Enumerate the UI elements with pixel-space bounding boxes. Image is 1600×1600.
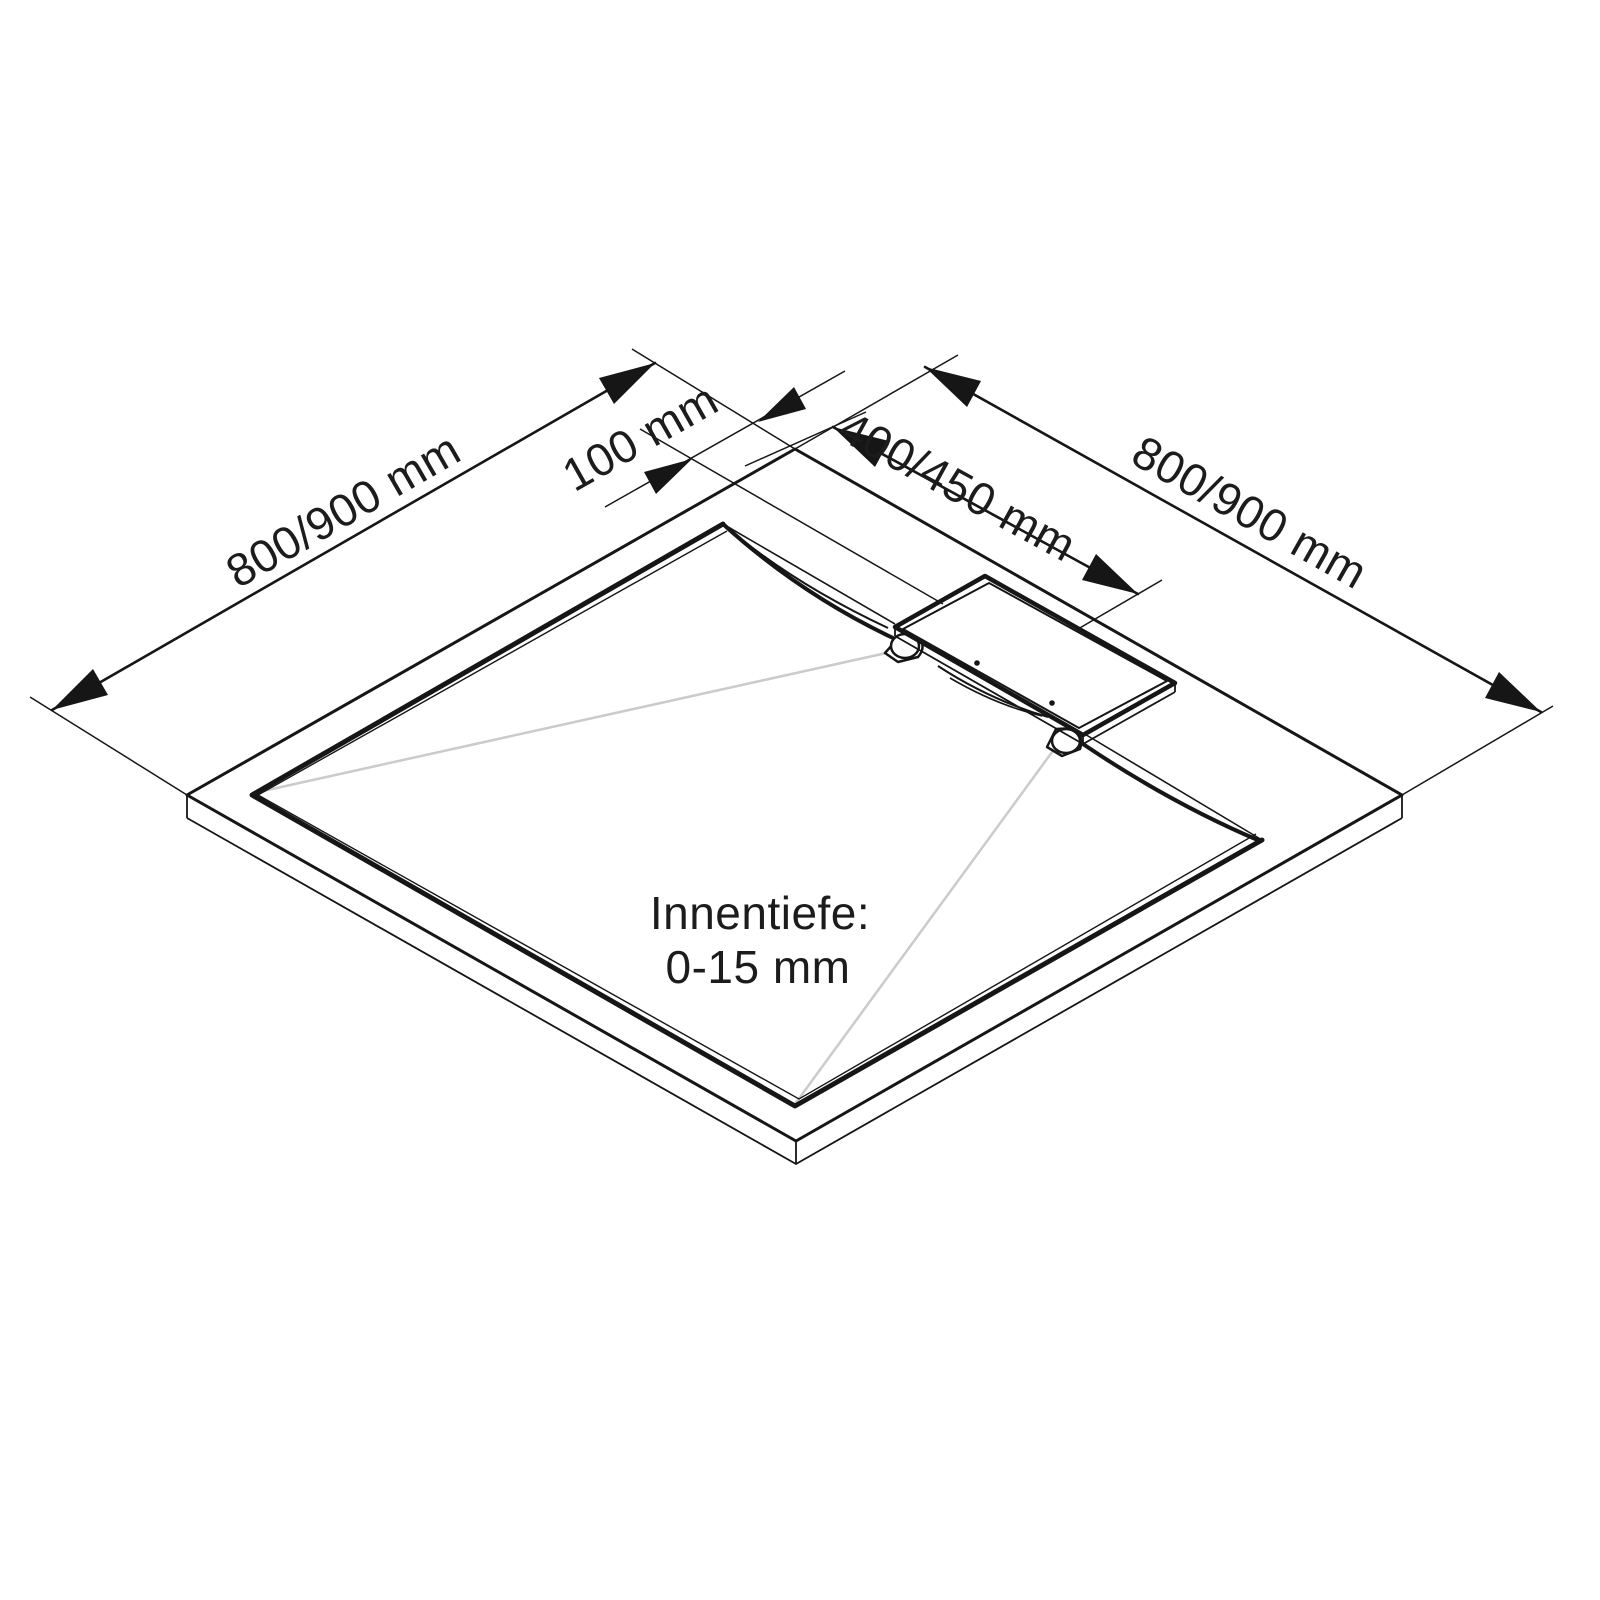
dimension-line-left <box>52 363 655 710</box>
tray-body <box>187 449 1402 1164</box>
tray-inner-rim-offset <box>258 531 1256 1099</box>
tray-outer-edge <box>187 449 1402 1141</box>
arrow-left-dim-lower <box>52 669 108 710</box>
arrow-offset-dim-right <box>758 387 806 422</box>
dim-label-left: 800/900 mm <box>217 422 469 597</box>
dim-label-right: 800/900 mm <box>1124 425 1377 599</box>
extension-line-right-corner <box>1402 706 1553 795</box>
arrow-right-dim-upper <box>925 367 981 407</box>
plate-notch-dot-2 <box>1049 700 1055 706</box>
basin-fold-lines <box>254 650 1055 1104</box>
dim-label-corner-offset: 100 mm <box>554 373 727 502</box>
plate-notch-dot-1 <box>974 660 980 666</box>
fold-line-left <box>254 650 900 793</box>
depth-note-line2: 0-15 mm <box>666 941 851 993</box>
shower-tray-diagram: 800/900 mm 100 mm 400/450 mm 800/900 mm … <box>0 0 1600 1600</box>
channel-left-bottom-line <box>723 524 893 638</box>
extension-line-left-corner <box>30 697 187 795</box>
drawing-canvas: 800/900 mm 100 mm 400/450 mm 800/900 mm … <box>0 0 1600 1600</box>
channel-right-top-line <box>1083 733 1262 840</box>
channel-left-top-line <box>723 524 895 624</box>
dim-label-drain: 400/450 mm <box>831 401 1085 572</box>
channel-left-mid-line <box>723 524 888 628</box>
arrow-offset-dim-left <box>644 459 692 494</box>
arrow-left-dim-upper <box>599 363 655 404</box>
depth-note-line1: Innentiefe: <box>650 887 870 939</box>
tray-inner-rim <box>252 524 1262 1106</box>
arrow-drain-dim-right <box>1082 554 1138 594</box>
arrow-right-dim-lower <box>1485 672 1541 712</box>
channel-right-bottom-line <box>1080 742 1260 841</box>
